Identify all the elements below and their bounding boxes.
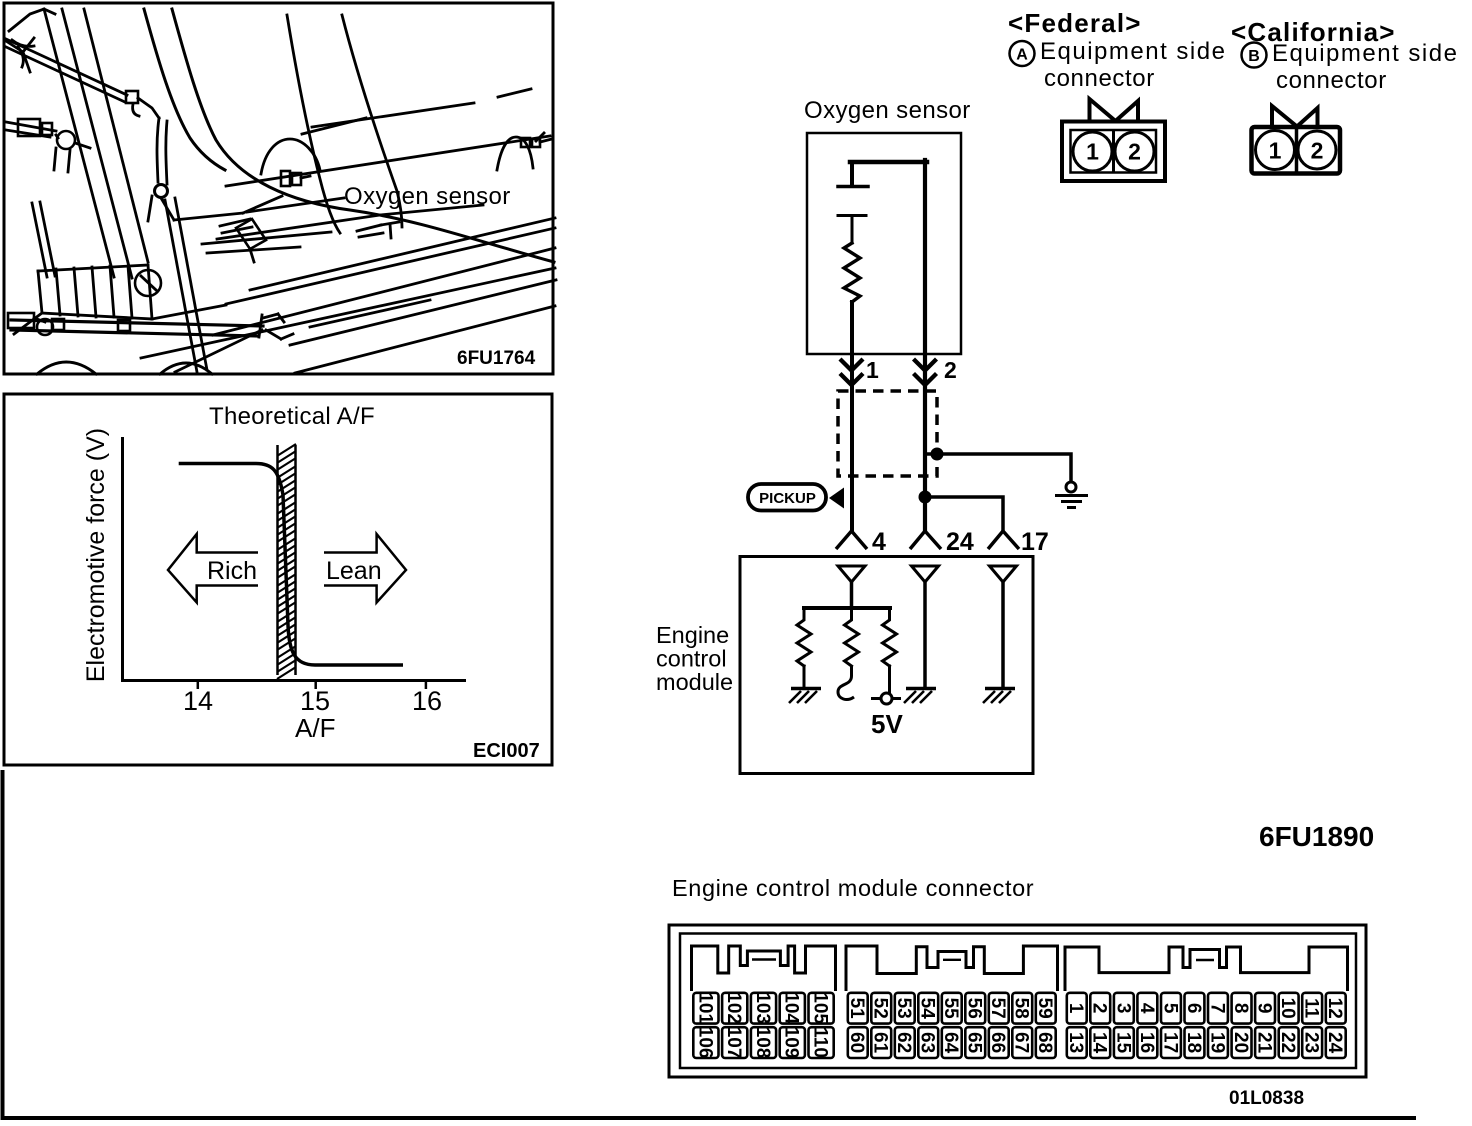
svg-text:14: 14 <box>183 686 213 716</box>
svg-text:15: 15 <box>300 686 330 716</box>
svg-text:17: 17 <box>1159 1032 1180 1053</box>
svg-text:1: 1 <box>1269 138 1282 164</box>
svg-text:A: A <box>1016 47 1028 64</box>
svg-text:16: 16 <box>412 686 442 716</box>
svg-text:18: 18 <box>1183 1032 1204 1053</box>
svg-text:101: 101 <box>694 992 715 1024</box>
svg-text:19: 19 <box>1206 1032 1227 1053</box>
svg-text:1: 1 <box>866 357 879 383</box>
svg-text:65: 65 <box>964 1032 985 1054</box>
svg-text:1: 1 <box>1086 139 1099 165</box>
svg-text:01L0838: 01L0838 <box>1229 1088 1304 1109</box>
svg-text:109: 109 <box>781 1027 802 1059</box>
svg-text:connector: connector <box>1276 67 1387 94</box>
svg-text:63: 63 <box>917 1032 938 1053</box>
svg-text:11: 11 <box>1301 998 1322 1019</box>
svg-text:22: 22 <box>1277 1032 1298 1053</box>
svg-text:Equipment side: Equipment side <box>1040 38 1226 65</box>
svg-text:4: 4 <box>872 528 886 556</box>
svg-text:23: 23 <box>1301 1032 1322 1053</box>
svg-text:66: 66 <box>987 1032 1008 1053</box>
svg-text:2: 2 <box>1311 138 1324 164</box>
svg-text:14: 14 <box>1089 1032 1110 1054</box>
svg-text:54: 54 <box>917 998 938 1020</box>
svg-text:59: 59 <box>1034 998 1055 1019</box>
svg-text:68: 68 <box>1034 1032 1055 1053</box>
svg-text:Electromotive force (V): Electromotive force (V) <box>82 428 110 682</box>
svg-text:control: control <box>656 646 727 672</box>
svg-text:<Federal>: <Federal> <box>1008 8 1142 38</box>
svg-text:6FU1890: 6FU1890 <box>1259 821 1374 852</box>
svg-text:61: 61 <box>870 1032 891 1054</box>
svg-text:21: 21 <box>1254 1032 1275 1054</box>
svg-text:52: 52 <box>870 998 891 1019</box>
svg-text:55: 55 <box>940 998 961 1020</box>
svg-text:106: 106 <box>694 1027 715 1059</box>
svg-text:module: module <box>656 669 733 695</box>
svg-text:24: 24 <box>946 528 974 556</box>
svg-text:24: 24 <box>1324 1032 1345 1054</box>
svg-text:4: 4 <box>1136 1003 1157 1014</box>
svg-text:51: 51 <box>846 998 867 1020</box>
svg-text:Oxygen sensor: Oxygen sensor <box>344 183 511 210</box>
svg-text:12: 12 <box>1324 998 1345 1019</box>
svg-text:57: 57 <box>987 998 1008 1019</box>
svg-text:107: 107 <box>723 1027 744 1059</box>
svg-text:Equipment side: Equipment side <box>1272 40 1458 67</box>
svg-text:7: 7 <box>1206 1003 1227 1014</box>
svg-text:110: 110 <box>810 1027 831 1058</box>
svg-text:60: 60 <box>846 1032 867 1053</box>
svg-text:Theoretical A/F: Theoretical A/F <box>209 403 375 430</box>
svg-text:102: 102 <box>723 992 744 1024</box>
svg-text:PICKUP: PICKUP <box>759 490 816 507</box>
svg-text:105: 105 <box>810 992 831 1024</box>
svg-text:67: 67 <box>1011 1032 1032 1053</box>
svg-text:ECI007: ECI007 <box>473 740 540 762</box>
svg-text:connector: connector <box>1044 65 1155 92</box>
svg-text:B: B <box>1248 48 1260 65</box>
svg-text:5: 5 <box>1159 1003 1180 1014</box>
svg-text:10: 10 <box>1277 998 1298 1019</box>
svg-text:17: 17 <box>1021 528 1049 556</box>
svg-text:20: 20 <box>1230 1032 1251 1053</box>
svg-text:56: 56 <box>964 998 985 1019</box>
svg-text:Engine control module connecto: Engine control module connector <box>672 875 1034 901</box>
svg-text:58: 58 <box>1011 998 1032 1019</box>
svg-text:13: 13 <box>1065 1032 1086 1053</box>
svg-text:16: 16 <box>1136 1032 1157 1053</box>
svg-text:2: 2 <box>1128 139 1141 165</box>
svg-text:6: 6 <box>1183 1003 1204 1014</box>
svg-text:104: 104 <box>781 992 802 1024</box>
svg-text:1: 1 <box>1065 1003 1086 1014</box>
svg-text:Rich: Rich <box>207 557 257 585</box>
svg-text:Oxygen sensor: Oxygen sensor <box>804 97 971 124</box>
svg-text:53: 53 <box>893 998 914 1019</box>
svg-text:103: 103 <box>752 992 773 1024</box>
svg-text:2: 2 <box>1089 1003 1110 1014</box>
svg-text:15: 15 <box>1112 1032 1133 1054</box>
svg-text:62: 62 <box>893 1032 914 1053</box>
svg-text:2: 2 <box>944 357 957 383</box>
svg-text:Engine: Engine <box>656 622 729 648</box>
svg-text:9: 9 <box>1254 1003 1275 1014</box>
svg-text:64: 64 <box>940 1032 961 1054</box>
svg-text:6FU1764: 6FU1764 <box>457 348 536 369</box>
svg-text:3: 3 <box>1112 1003 1133 1014</box>
svg-text:A/F: A/F <box>295 713 335 743</box>
svg-text:5V: 5V <box>871 709 903 739</box>
svg-text:8: 8 <box>1230 1003 1251 1014</box>
svg-text:Lean: Lean <box>326 557 382 585</box>
svg-text:108: 108 <box>752 1027 773 1059</box>
